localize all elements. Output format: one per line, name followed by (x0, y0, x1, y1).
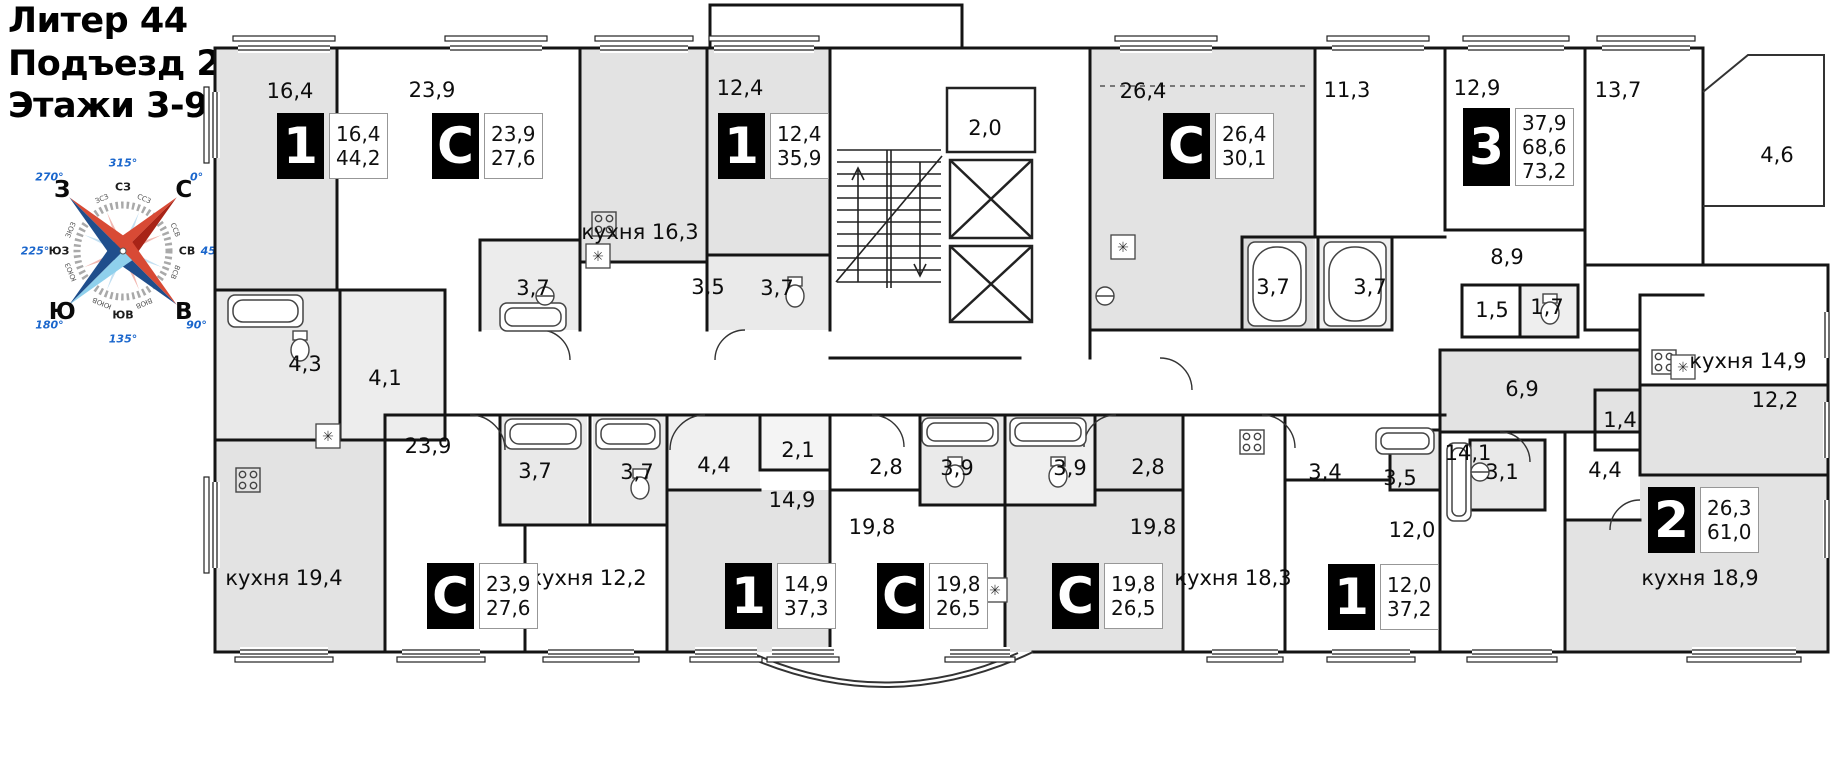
room-area-label: 4,3 (288, 352, 321, 376)
apartment-type: 1 (277, 113, 324, 179)
svg-text:✳: ✳ (322, 429, 334, 445)
window-icon (204, 477, 220, 573)
svg-text:✳: ✳ (1677, 360, 1689, 376)
apartment-type: 1 (725, 563, 772, 629)
window-icon (1327, 647, 1415, 662)
apartment-badge: 116,444,2 (277, 113, 388, 179)
room-area-label: 3,9 (940, 456, 973, 480)
room-area-label: 3,7 (518, 459, 551, 483)
floor-plan: ✳✳✳✳✳ 16,423,912,42,026,411,312,913,74,6… (0, 0, 1832, 768)
floor-plan-page: Литер 44 Подъезд 2 Этажи 3-9 С0°СВ45°В90… (0, 0, 1832, 768)
apartment-badge: 226,361,0 (1648, 487, 1759, 553)
room-area-label: 12,4 (717, 76, 764, 100)
window-icon (1823, 500, 1832, 558)
apartment-type: 1 (1328, 564, 1375, 630)
room-area-label: 4,4 (1588, 458, 1621, 482)
room-area-label: 3,9 (1053, 456, 1086, 480)
room-area-label: 1,7 (1530, 295, 1563, 319)
room-area-label: 6,9 (1505, 377, 1538, 401)
room-area-label: 2,8 (1131, 455, 1164, 479)
room-area-label: 12,0 (1389, 518, 1436, 542)
room-area-label: кухня 18,3 (1174, 566, 1291, 590)
apartment-type: 3 (1463, 108, 1510, 186)
window-icon (1207, 647, 1283, 662)
apartment-areas: 19,826,5 (1104, 563, 1163, 629)
window-icon (233, 36, 335, 53)
room-area-label: 3,7 (516, 276, 549, 300)
elevator-icon (950, 160, 1032, 322)
room-area-label: 12,2 (1752, 388, 1799, 412)
apartment-badge: С26,430,1 (1163, 113, 1274, 179)
apartment-areas: 16,444,2 (329, 113, 388, 179)
window-icon (595, 36, 693, 53)
bathtub-icon (505, 419, 581, 449)
apartment-areas: 12,037,2 (1380, 564, 1439, 630)
window-icon (945, 647, 1015, 662)
room-area-label: 4,6 (1760, 143, 1793, 167)
room-area-label: 3,5 (691, 275, 724, 299)
room-area-label: кухня 18,9 (1641, 566, 1758, 590)
bathtub-icon (596, 419, 660, 449)
apartment-badge: С19,826,5 (1052, 563, 1163, 629)
apartment-type: С (432, 113, 479, 179)
apartment-areas: 19,826,5 (929, 563, 988, 629)
room-area-label: 3,7 (1256, 275, 1289, 299)
apartment-type: С (877, 563, 924, 629)
room-area-label: 4,4 (697, 453, 730, 477)
apartment-badge: С19,826,5 (877, 563, 988, 629)
window-icon (543, 647, 639, 662)
window-icon (1823, 402, 1832, 458)
window-icon (1115, 36, 1217, 53)
room-area-label: 19,8 (849, 515, 896, 539)
window-icon (1687, 647, 1801, 662)
room-area-label: кухня 16,3 (581, 220, 698, 244)
apartment-areas: 14,937,3 (777, 563, 836, 629)
apartment-badge: С23,927,6 (427, 563, 538, 629)
apartment-areas: 26,430,1 (1215, 113, 1274, 179)
vent-icon: ✳ (316, 424, 340, 448)
apartment-badge: 112,435,9 (718, 113, 829, 179)
room-area-label: 13,7 (1595, 78, 1642, 102)
room-area-label: 4,1 (368, 366, 401, 390)
apartment-badge: С23,927,6 (432, 113, 543, 179)
room-area-label: 3,4 (1308, 460, 1341, 484)
window-icon (204, 87, 220, 163)
room-area-label: 26,4 (1120, 79, 1167, 103)
window-icon (1823, 312, 1832, 358)
window-icon (1327, 36, 1429, 53)
vent-icon: ✳ (1111, 235, 1135, 259)
room-area-label: 14,9 (769, 488, 816, 512)
apartment-badge: 114,937,3 (725, 563, 836, 629)
window-icon (690, 647, 762, 662)
room-area-label: 2,0 (968, 116, 1001, 140)
room-area-label: 3,7 (1353, 275, 1386, 299)
room-area-label: 2,8 (869, 455, 902, 479)
window-icon (397, 647, 485, 662)
window-icon (1463, 36, 1569, 53)
room-area-label: 23,9 (409, 78, 456, 102)
apartment-type: 2 (1648, 487, 1695, 553)
bathtub-icon (1376, 428, 1434, 454)
svg-text:✳: ✳ (989, 583, 1001, 599)
bathtub-icon (1010, 418, 1086, 446)
room-area-label: 3,1 (1485, 460, 1518, 484)
window-icon (1467, 647, 1557, 662)
bathtub-icon (228, 295, 303, 327)
svg-text:✳: ✳ (592, 249, 604, 265)
apartment-badge: 112,037,2 (1328, 564, 1439, 630)
room-area-label: 8,9 (1490, 245, 1523, 269)
window-icon (709, 36, 819, 53)
vent-icon: ✳ (586, 244, 610, 268)
room-area-label: 23,9 (405, 434, 452, 458)
apartment-badge: 337,968,673,2 (1463, 108, 1574, 186)
room-area-label: кухня 19,4 (225, 566, 342, 590)
staircase-icon (836, 150, 942, 288)
room-area-label: 12,9 (1454, 76, 1501, 100)
apartment-type: 1 (718, 113, 765, 179)
room-area-label: 2,1 (781, 438, 814, 462)
svg-text:✳: ✳ (1117, 240, 1129, 256)
room-area-label: 1,5 (1475, 298, 1508, 322)
apartment-areas: 37,968,673,2 (1515, 108, 1574, 186)
bathtub-icon (922, 418, 998, 446)
window-icon (1597, 36, 1695, 53)
apartment-areas: 12,435,9 (770, 113, 829, 179)
sink-icon (1096, 287, 1114, 305)
window-icon (235, 647, 333, 662)
room-area-label: кухня 12,2 (529, 566, 646, 590)
apartment-areas: 23,927,6 (484, 113, 543, 179)
room-area-label: 19,8 (1130, 515, 1177, 539)
room-area-label: 3,7 (760, 276, 793, 300)
room-area-label: 3,5 (1383, 466, 1416, 490)
room-area-label: 11,3 (1324, 78, 1371, 102)
apartment-type: С (427, 563, 474, 629)
room-area-label: 3,7 (620, 460, 653, 484)
apartment-type: С (1052, 563, 1099, 629)
room-area-label: 16,4 (267, 79, 314, 103)
bathtub-icon (500, 303, 566, 331)
apartment-areas: 26,361,0 (1700, 487, 1759, 553)
window-icon (445, 36, 547, 53)
apartment-areas: 23,927,6 (479, 563, 538, 629)
window-icon (767, 647, 839, 662)
room-area-label: 1,4 (1603, 408, 1636, 432)
stove-icon (1240, 430, 1264, 454)
room-area-label: кухня 14,9 (1689, 349, 1806, 373)
apartment-type: С (1163, 113, 1210, 179)
